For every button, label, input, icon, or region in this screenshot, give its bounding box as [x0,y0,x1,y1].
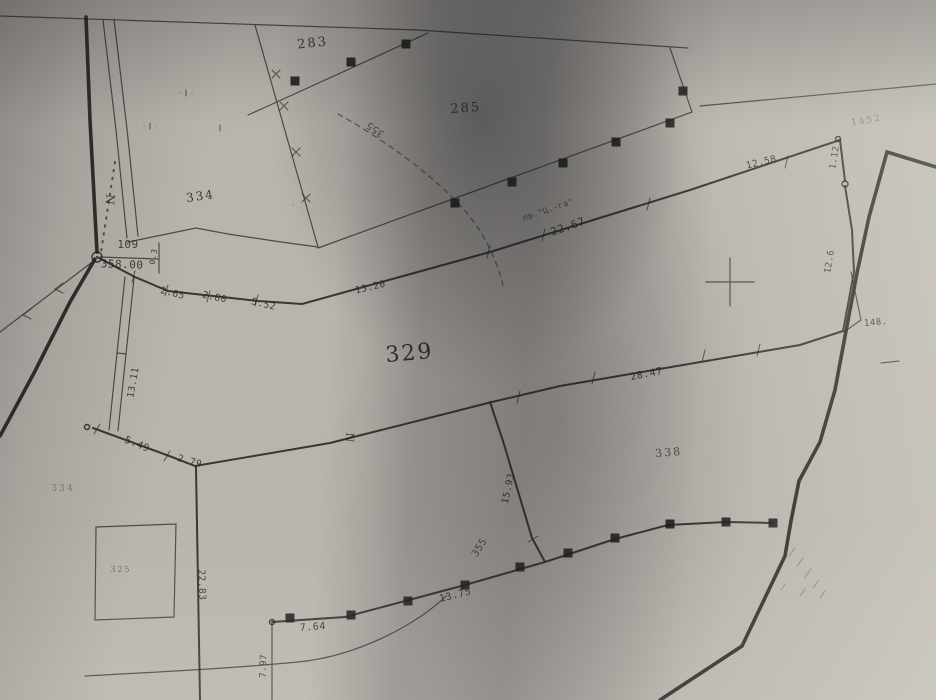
meas-label-22.83: 22.83 [195,569,207,600]
meas-label-13.20: 13.20 [354,279,387,297]
boundary-north [97,140,840,304]
meas-label-22.67: 22.67 [549,215,587,239]
meas-label-13.11: 13.11 [125,366,141,399]
meas-label-5.49: 5.49 [123,435,151,455]
parcel-label-285: 285 [450,100,482,117]
meas-label-148.: 148. [864,317,888,329]
boundary-monument-line [272,522,773,622]
north-label-N: N [342,432,356,443]
meas-label-2.80: 2.80 [201,290,228,306]
cadastral-map-photo: 28328533432933833432514522.652.805.5213.… [0,0,936,700]
north-label-N: N [102,193,117,205]
point-label-358.00: 358.00 [101,257,144,271]
map-line [0,263,91,332]
thick-boundary-left-lower [0,259,95,436]
point-circle [85,425,90,430]
dotted-line [101,162,115,252]
meas-label-15.93: 15.93 [500,472,517,505]
map-line [318,48,692,248]
meas-label-5.52: 5.52 [250,296,277,313]
meas-label-355: 355 [364,119,386,139]
parcel-label-325: 325 [110,565,131,574]
faint-scribble [781,548,825,598]
register-cross [706,258,754,306]
meas-label-0.3: 0.3 [148,248,160,265]
street-label-пр."Ц.-га": пр."Ц.-га" [522,197,575,223]
parcel-boundaries [93,140,854,700]
meas-label-12.58: 12.58 [745,153,778,171]
cadastral-map-drawing: 28328533432933833432514522.652.805.5213.… [0,0,936,700]
thick-boundary-left [86,17,97,252]
parcel-label-334: 334 [51,484,74,494]
thick-boundary-right [660,152,936,700]
meas-label-2.79: 2.79 [176,453,203,470]
meas-label-1.12: 1.12 [828,145,842,170]
tick-marks [23,70,788,542]
parcel-label-283: 283 [297,34,329,52]
parcel-label-1452: 1452 [851,113,883,128]
road-tie [117,353,126,354]
boundary-south [93,331,843,466]
map-line [103,20,127,238]
map-line [255,25,318,247]
parcel-label-329: 329 [384,339,434,368]
survey-point-circles [85,137,849,625]
map-dash [881,361,899,363]
meas-label-28.47: 28.47 [629,366,663,383]
meas-label-12.6: 12.6 [823,249,837,274]
curve-355 [338,114,504,290]
meas-label-2.65: 2.65 [159,285,186,302]
boundary-inner [490,402,545,562]
map-line [128,228,318,247]
meas-label-7.97: 7.97 [259,654,270,678]
map-line [248,33,428,115]
meas-label-13.75: 13.75 [438,586,472,605]
meas-label-7.64: 7.64 [299,621,326,634]
map-line [114,19,138,236]
parcel-label-338: 338 [655,445,683,460]
point-label-109: 109 [117,238,138,251]
building-outline [95,524,176,620]
map-label-layer: 28328533432933833432514522.652.805.5213.… [51,34,888,677]
map-line [700,84,936,106]
meas-label-355: 355 [470,536,490,558]
parcel-label-334: 334 [185,187,216,205]
